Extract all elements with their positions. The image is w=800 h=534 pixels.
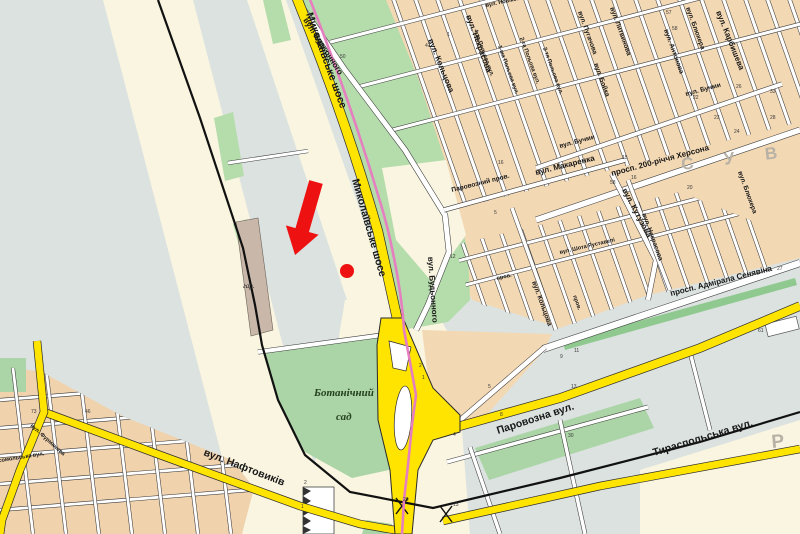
house-number: 4 — [453, 432, 456, 438]
house-number: 1 — [422, 375, 425, 381]
house-number: 24 — [734, 129, 740, 135]
marker-dot-icon — [340, 264, 354, 278]
house-number: 50 — [340, 54, 346, 60]
house-number: 28 — [770, 115, 776, 121]
house-number: 1 — [301, 504, 304, 510]
house-number: 58 — [610, 180, 616, 186]
map-stage: Миколаївське шосеМиколаївське шосеПарово… — [0, 0, 800, 534]
house-number: 73 — [31, 409, 37, 415]
map-label: гар. — [243, 282, 255, 290]
house-number: 58 — [672, 26, 678, 32]
house-number: 5 — [488, 384, 491, 390]
house-number: 16 — [631, 175, 637, 181]
house-number: 30 — [568, 433, 574, 439]
house-number: 5 — [494, 210, 497, 216]
house-number: 57 — [666, 10, 672, 16]
house-number: 8 — [500, 412, 503, 418]
house-number: 26 — [403, 497, 409, 503]
house-number: 13 — [571, 384, 577, 390]
house-number: 1 — [447, 32, 450, 38]
house-number: 13 — [453, 502, 459, 508]
house-number: 33 — [770, 89, 776, 95]
house-number: 2 — [304, 480, 307, 486]
map-label: Ботанічний — [313, 387, 374, 399]
house-number: 2 — [419, 363, 422, 369]
house-number: 23 — [714, 115, 720, 121]
house-number: 26 — [736, 84, 742, 90]
map-label: Р — [771, 431, 786, 453]
house-number: 15 — [622, 155, 628, 161]
house-number: 47 — [425, 43, 431, 49]
house-number: 20 — [687, 185, 693, 191]
house-number: 9 — [560, 354, 563, 360]
house-number: 61 — [758, 328, 764, 334]
map-label: сад — [336, 411, 352, 423]
house-number: 27 — [777, 266, 783, 272]
house-number: 12 — [450, 254, 456, 260]
house-number: 11 — [574, 348, 579, 354]
map-canvas[interactable]: Миколаївське шосеМиколаївське шосеПарово… — [0, 0, 800, 534]
house-number: 46 — [85, 409, 91, 415]
house-number: 16 — [498, 160, 504, 166]
house-number: 22 — [693, 95, 699, 101]
